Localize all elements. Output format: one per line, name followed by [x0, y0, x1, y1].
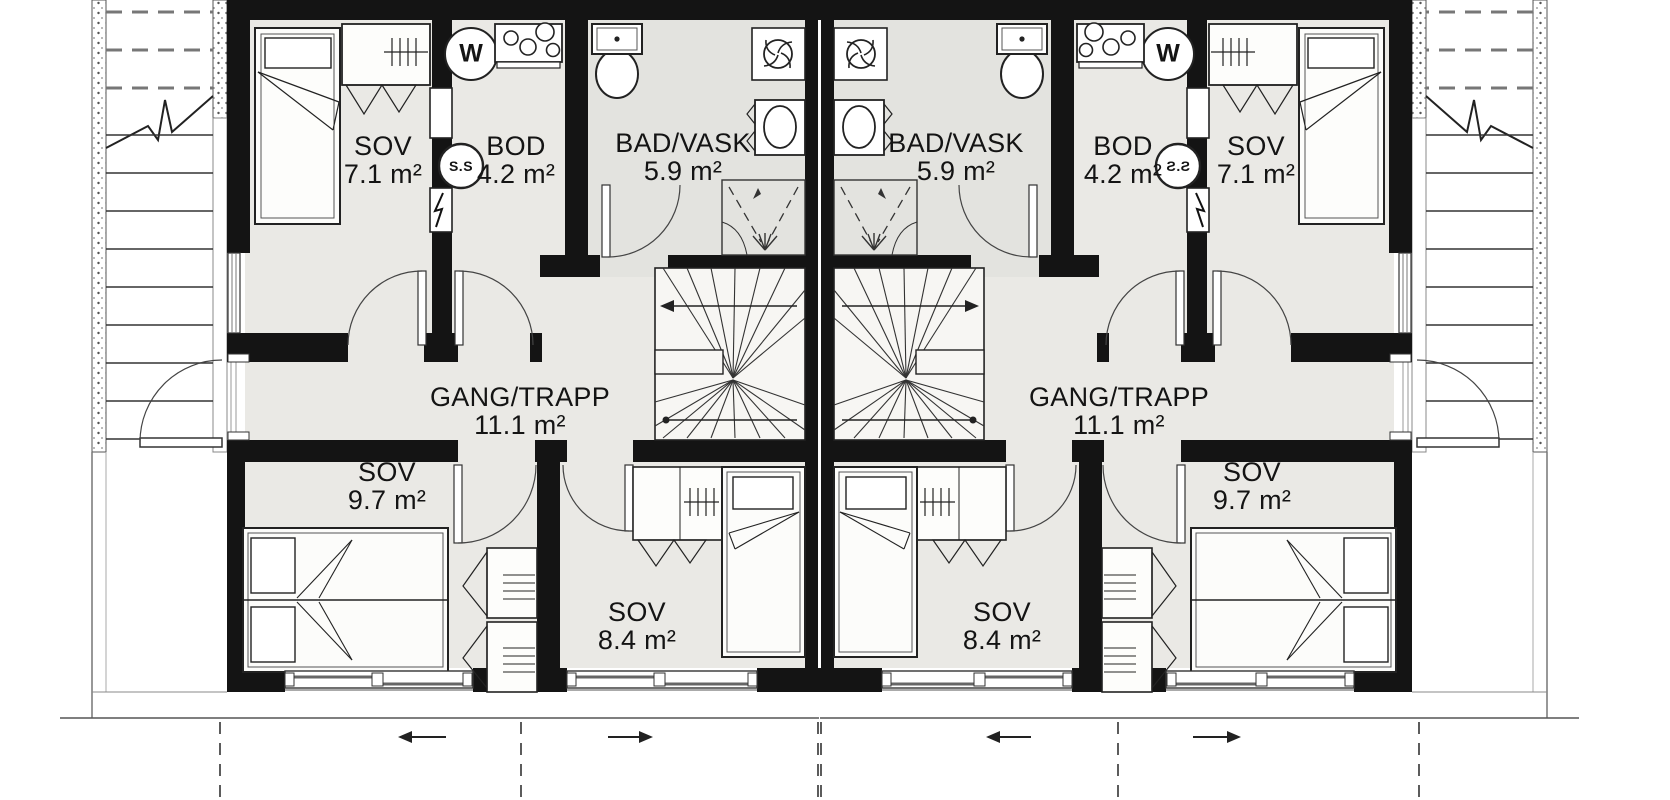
floor-plan: SOV 7.1 m² BOD 4.2 m² BAD/VASK 5.9 m² GA… — [0, 0, 1670, 800]
bed-double-icon — [243, 528, 448, 672]
water-heater-label-right: W — [1156, 40, 1180, 69]
slide-direction-arrow — [398, 731, 446, 743]
room-area: 8.4 m² — [872, 626, 1132, 654]
extractor-fan-icon — [752, 28, 805, 80]
fuse-box-label-right: S.S — [1166, 158, 1190, 174]
internal-stairs-icon — [655, 268, 805, 440]
room-label-sov-9-7-right: SOV 9.7 m² — [1122, 458, 1382, 514]
water-heater-label-left: W — [459, 40, 483, 69]
slide-direction-arrow — [608, 731, 653, 743]
room-label-sov-8-4-right: SOV 8.4 m² — [872, 598, 1132, 654]
electrical-panel-icon — [430, 188, 452, 232]
cooktop-icon — [495, 23, 562, 68]
fuse-box-label-left: S.S — [449, 158, 473, 174]
sliding-window — [567, 671, 757, 690]
room-area: 9.7 m² — [1122, 486, 1382, 514]
room-area: 8.4 m² — [507, 626, 767, 654]
room-name: SOV — [257, 458, 517, 486]
room-name: GANG/TRAPP — [390, 383, 650, 411]
external-stairs-icon — [92, 0, 227, 718]
room-name: SOV — [1122, 458, 1382, 486]
room-area: 5.9 m² — [553, 157, 813, 185]
sliding-window — [285, 671, 473, 690]
room-name: SOV — [872, 598, 1132, 626]
room-name: BAD/VASK — [553, 129, 813, 157]
room-area: 5.9 m² — [826, 157, 1086, 185]
room-name: SOV — [507, 598, 767, 626]
duct-shaft-icon — [430, 88, 452, 138]
room-label-sov-8-4-left: SOV 8.4 m² — [507, 598, 767, 654]
room-label-bad-vask-right: BAD/VASK 5.9 m² — [826, 129, 1086, 185]
sidelight-window — [228, 253, 240, 333]
room-label-bad-vask-left: BAD/VASK 5.9 m² — [553, 129, 813, 185]
room-label-sov-9-7-left: SOV 9.7 m² — [257, 458, 517, 514]
room-name: GANG/TRAPP — [989, 383, 1249, 411]
room-label-gang-trapp-left: GANG/TRAPP 11.1 m² — [390, 383, 650, 439]
room-area: 11.1 m² — [390, 411, 650, 439]
toilet-icon — [592, 24, 642, 98]
floor-plan-canvas — [0, 0, 1670, 800]
room-label-gang-trapp-right: GANG/TRAPP 11.1 m² — [989, 383, 1249, 439]
property-boundary-line — [220, 722, 818, 800]
room-area: 9.7 m² — [257, 486, 517, 514]
room-area: 11.1 m² — [989, 411, 1249, 439]
bed-single-icon — [255, 28, 340, 224]
room-name: BAD/VASK — [826, 129, 1086, 157]
